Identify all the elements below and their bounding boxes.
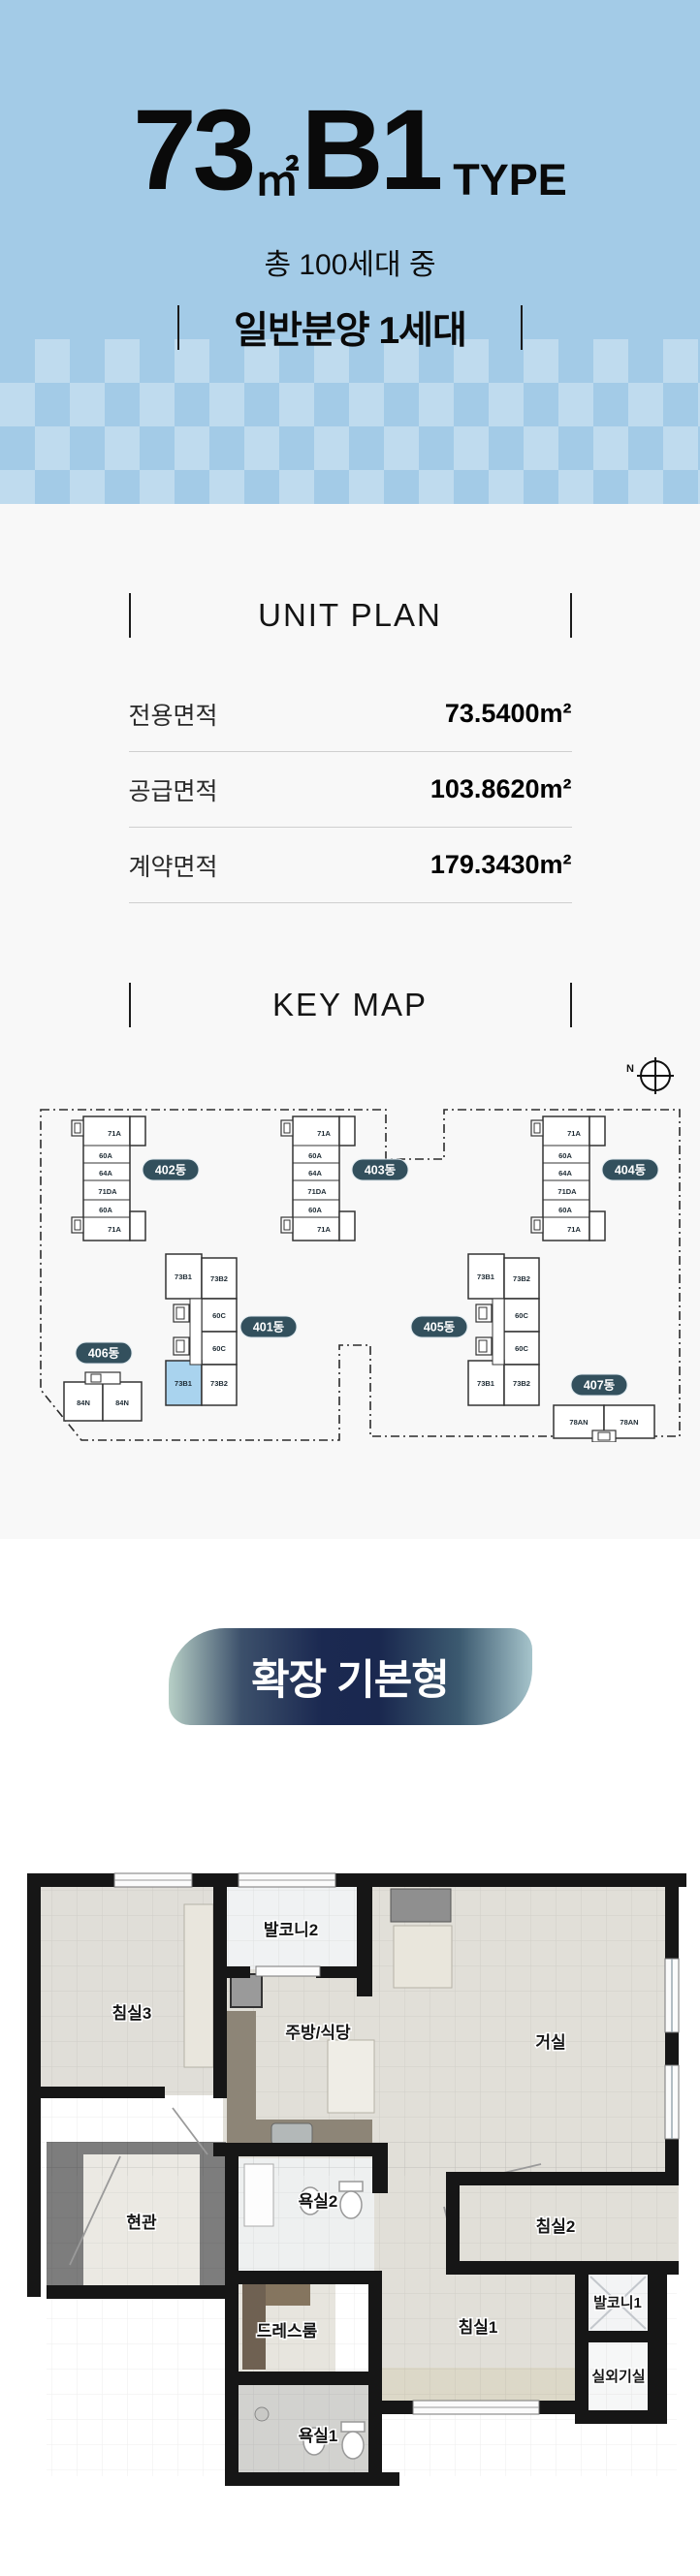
building-406: 84N 84N 406동 — [64, 1342, 142, 1421]
living-closet-beige — [394, 1926, 452, 1988]
svg-text:84N: 84N — [115, 1398, 129, 1407]
svg-text:64A: 64A — [99, 1169, 112, 1178]
svg-text:405동: 405동 — [424, 1321, 456, 1335]
svg-text:60A: 60A — [308, 1151, 322, 1160]
kitchen-sink — [271, 2123, 312, 2145]
unit-plan-title: UNIT PLAN — [258, 597, 442, 634]
sale-highlight: 일반분양 1세대 — [177, 300, 523, 355]
svg-text:발코니1: 발코니1 — [593, 2295, 642, 2311]
svg-text:욕실1: 욕실1 — [299, 2427, 338, 2445]
svg-text:402동: 402동 — [155, 1164, 187, 1178]
svg-text:주방/식당: 주방/식당 — [285, 2024, 351, 2042]
row-label: 전용면적 — [129, 697, 218, 732]
building-407: 78AN 78AN 407동 — [554, 1374, 654, 1442]
compass-icon: N — [626, 1057, 674, 1094]
svg-text:71A: 71A — [567, 1225, 581, 1234]
title-area: 73 — [133, 93, 252, 207]
building-402: 71A 60A 64A 71DA 60A 71A 402동 — [72, 1116, 199, 1241]
title-unit: ㎡ — [252, 157, 301, 207]
svg-text:N: N — [626, 1063, 634, 1075]
svg-text:60C: 60C — [212, 1311, 226, 1320]
building-404: 71A 60A 64A 71DA 60A 71A 404동 — [531, 1116, 658, 1241]
svg-text:71DA: 71DA — [98, 1187, 117, 1196]
svg-text:404동: 404동 — [615, 1164, 647, 1178]
svg-text:60C: 60C — [212, 1344, 226, 1353]
svg-text:71A: 71A — [317, 1225, 331, 1234]
plan-type-label: 확장 기본형 — [251, 1647, 449, 1707]
sale-highlight-text: 일반분양 1세대 — [234, 300, 466, 355]
right-bar — [570, 593, 572, 638]
left-bar — [129, 983, 131, 1027]
svg-text:60A: 60A — [308, 1206, 322, 1214]
svg-text:73B2: 73B2 — [513, 1274, 530, 1283]
building-403: 71A 60A 64A 71DA 60A 71A 403동 — [281, 1116, 408, 1241]
bath1-toilet-tank — [341, 2422, 365, 2432]
bath1-toilet — [342, 2432, 364, 2459]
svg-text:73B2: 73B2 — [513, 1379, 530, 1388]
svg-text:60C: 60C — [515, 1311, 528, 1320]
building-401: 73B1 73B2 60C 60C 73B1 73B2 401동 — [166, 1254, 297, 1405]
svg-text:73B2: 73B2 — [210, 1274, 228, 1283]
bedroom3-wardrobe — [184, 1904, 213, 2067]
svg-text:73B1: 73B1 — [175, 1272, 192, 1281]
svg-text:욕실2: 욕실2 — [299, 2192, 338, 2211]
svg-text:407동: 407동 — [584, 1379, 616, 1393]
svg-text:78AN: 78AN — [620, 1418, 638, 1427]
right-bar — [521, 305, 523, 350]
svg-text:거실: 거실 — [535, 2033, 565, 2052]
header: 73 ㎡ B1 TYPE 총 100세대 중 일반분양 1세대 — [0, 0, 700, 504]
svg-text:침실3: 침실3 — [112, 2003, 152, 2023]
svg-text:401동: 401동 — [253, 1321, 285, 1335]
table-row: 전용면적 73.5400m² — [129, 676, 572, 752]
svg-text:64A: 64A — [308, 1169, 322, 1178]
bath2-vanity — [244, 2164, 273, 2226]
svg-text:71DA: 71DA — [557, 1187, 577, 1196]
svg-text:73B2: 73B2 — [210, 1379, 228, 1388]
left-bar — [177, 305, 179, 350]
bath2-toilet-tank — [339, 2182, 363, 2191]
svg-text:71A: 71A — [108, 1225, 121, 1234]
info-section: UNIT PLAN 전용면적 73.5400m² 공급면적 103.8620m²… — [0, 504, 700, 1539]
row-value: 73.5400m² — [445, 699, 572, 729]
table-row: 계약면적 179.3430m² — [129, 828, 572, 903]
svg-text:73B1: 73B1 — [477, 1272, 494, 1281]
key-map-title: KEY MAP — [272, 987, 428, 1023]
row-label: 계약면적 — [129, 848, 218, 883]
floor-plan: 발코니2 침실3 주방/식당 거실 현관 욕실2 침실2 드레스룸 침실1 발코… — [27, 1866, 686, 2486]
svg-text:403동: 403동 — [365, 1164, 397, 1178]
svg-text:406동: 406동 — [88, 1347, 120, 1361]
bath2-toilet — [340, 2191, 362, 2218]
key-map-heading: KEY MAP — [129, 903, 572, 1027]
row-label: 공급면적 — [129, 772, 218, 807]
svg-text:발코니2: 발코니2 — [264, 1921, 318, 1939]
row-value: 179.3430m² — [430, 850, 572, 880]
svg-text:71A: 71A — [108, 1129, 121, 1138]
svg-text:드레스룸: 드레스룸 — [257, 2322, 318, 2340]
svg-text:60A: 60A — [99, 1206, 112, 1214]
key-map: N 71A 60A 64A 71DA 60A 71A 402동 — [29, 1054, 688, 1442]
svg-text:71A: 71A — [317, 1129, 331, 1138]
building-405: 73B1 73B2 60C 60C 73B1 73B2 405동 — [411, 1254, 539, 1405]
svg-text:60A: 60A — [558, 1206, 572, 1214]
table-row: 공급면적 103.8620m² — [129, 752, 572, 828]
svg-text:침실2: 침실2 — [536, 2216, 576, 2236]
svg-text:73B1: 73B1 — [175, 1379, 192, 1388]
row-value: 103.8620m² — [430, 774, 572, 804]
svg-text:침실1: 침실1 — [459, 2317, 498, 2337]
plan-type-badge: 확장 기본형 — [169, 1628, 532, 1725]
kitchen-island — [328, 2040, 374, 2113]
svg-text:60A: 60A — [99, 1151, 112, 1160]
kitchen-fridge — [231, 1974, 262, 2007]
svg-text:78AN: 78AN — [569, 1418, 588, 1427]
svg-text:71DA: 71DA — [307, 1187, 327, 1196]
unit-plan-heading: UNIT PLAN — [129, 504, 572, 638]
right-bar — [570, 983, 572, 1027]
bath1-shower — [255, 2407, 269, 2421]
svg-text:현관: 현관 — [126, 2214, 157, 2232]
svg-text:73B1: 73B1 — [477, 1379, 494, 1388]
left-bar — [129, 593, 131, 638]
svg-text:60C: 60C — [515, 1344, 528, 1353]
svg-text:71A: 71A — [567, 1129, 581, 1138]
area-table: 전용면적 73.5400m² 공급면적 103.8620m² 계약면적 179.… — [129, 676, 572, 903]
title-code: B1 — [301, 93, 439, 207]
svg-text:실외기실: 실외기실 — [591, 2368, 645, 2385]
page-title: 73 ㎡ B1 TYPE — [133, 93, 567, 207]
title-suffix: TYPE — [453, 158, 567, 207]
living-closet-dark — [391, 1889, 451, 1922]
svg-text:84N: 84N — [77, 1398, 90, 1407]
svg-text:64A: 64A — [558, 1169, 572, 1178]
household-total: 총 100세대 중 — [264, 240, 435, 283]
svg-text:60A: 60A — [558, 1151, 572, 1160]
floorplan-section: 확장 기본형 — [0, 1628, 700, 2576]
